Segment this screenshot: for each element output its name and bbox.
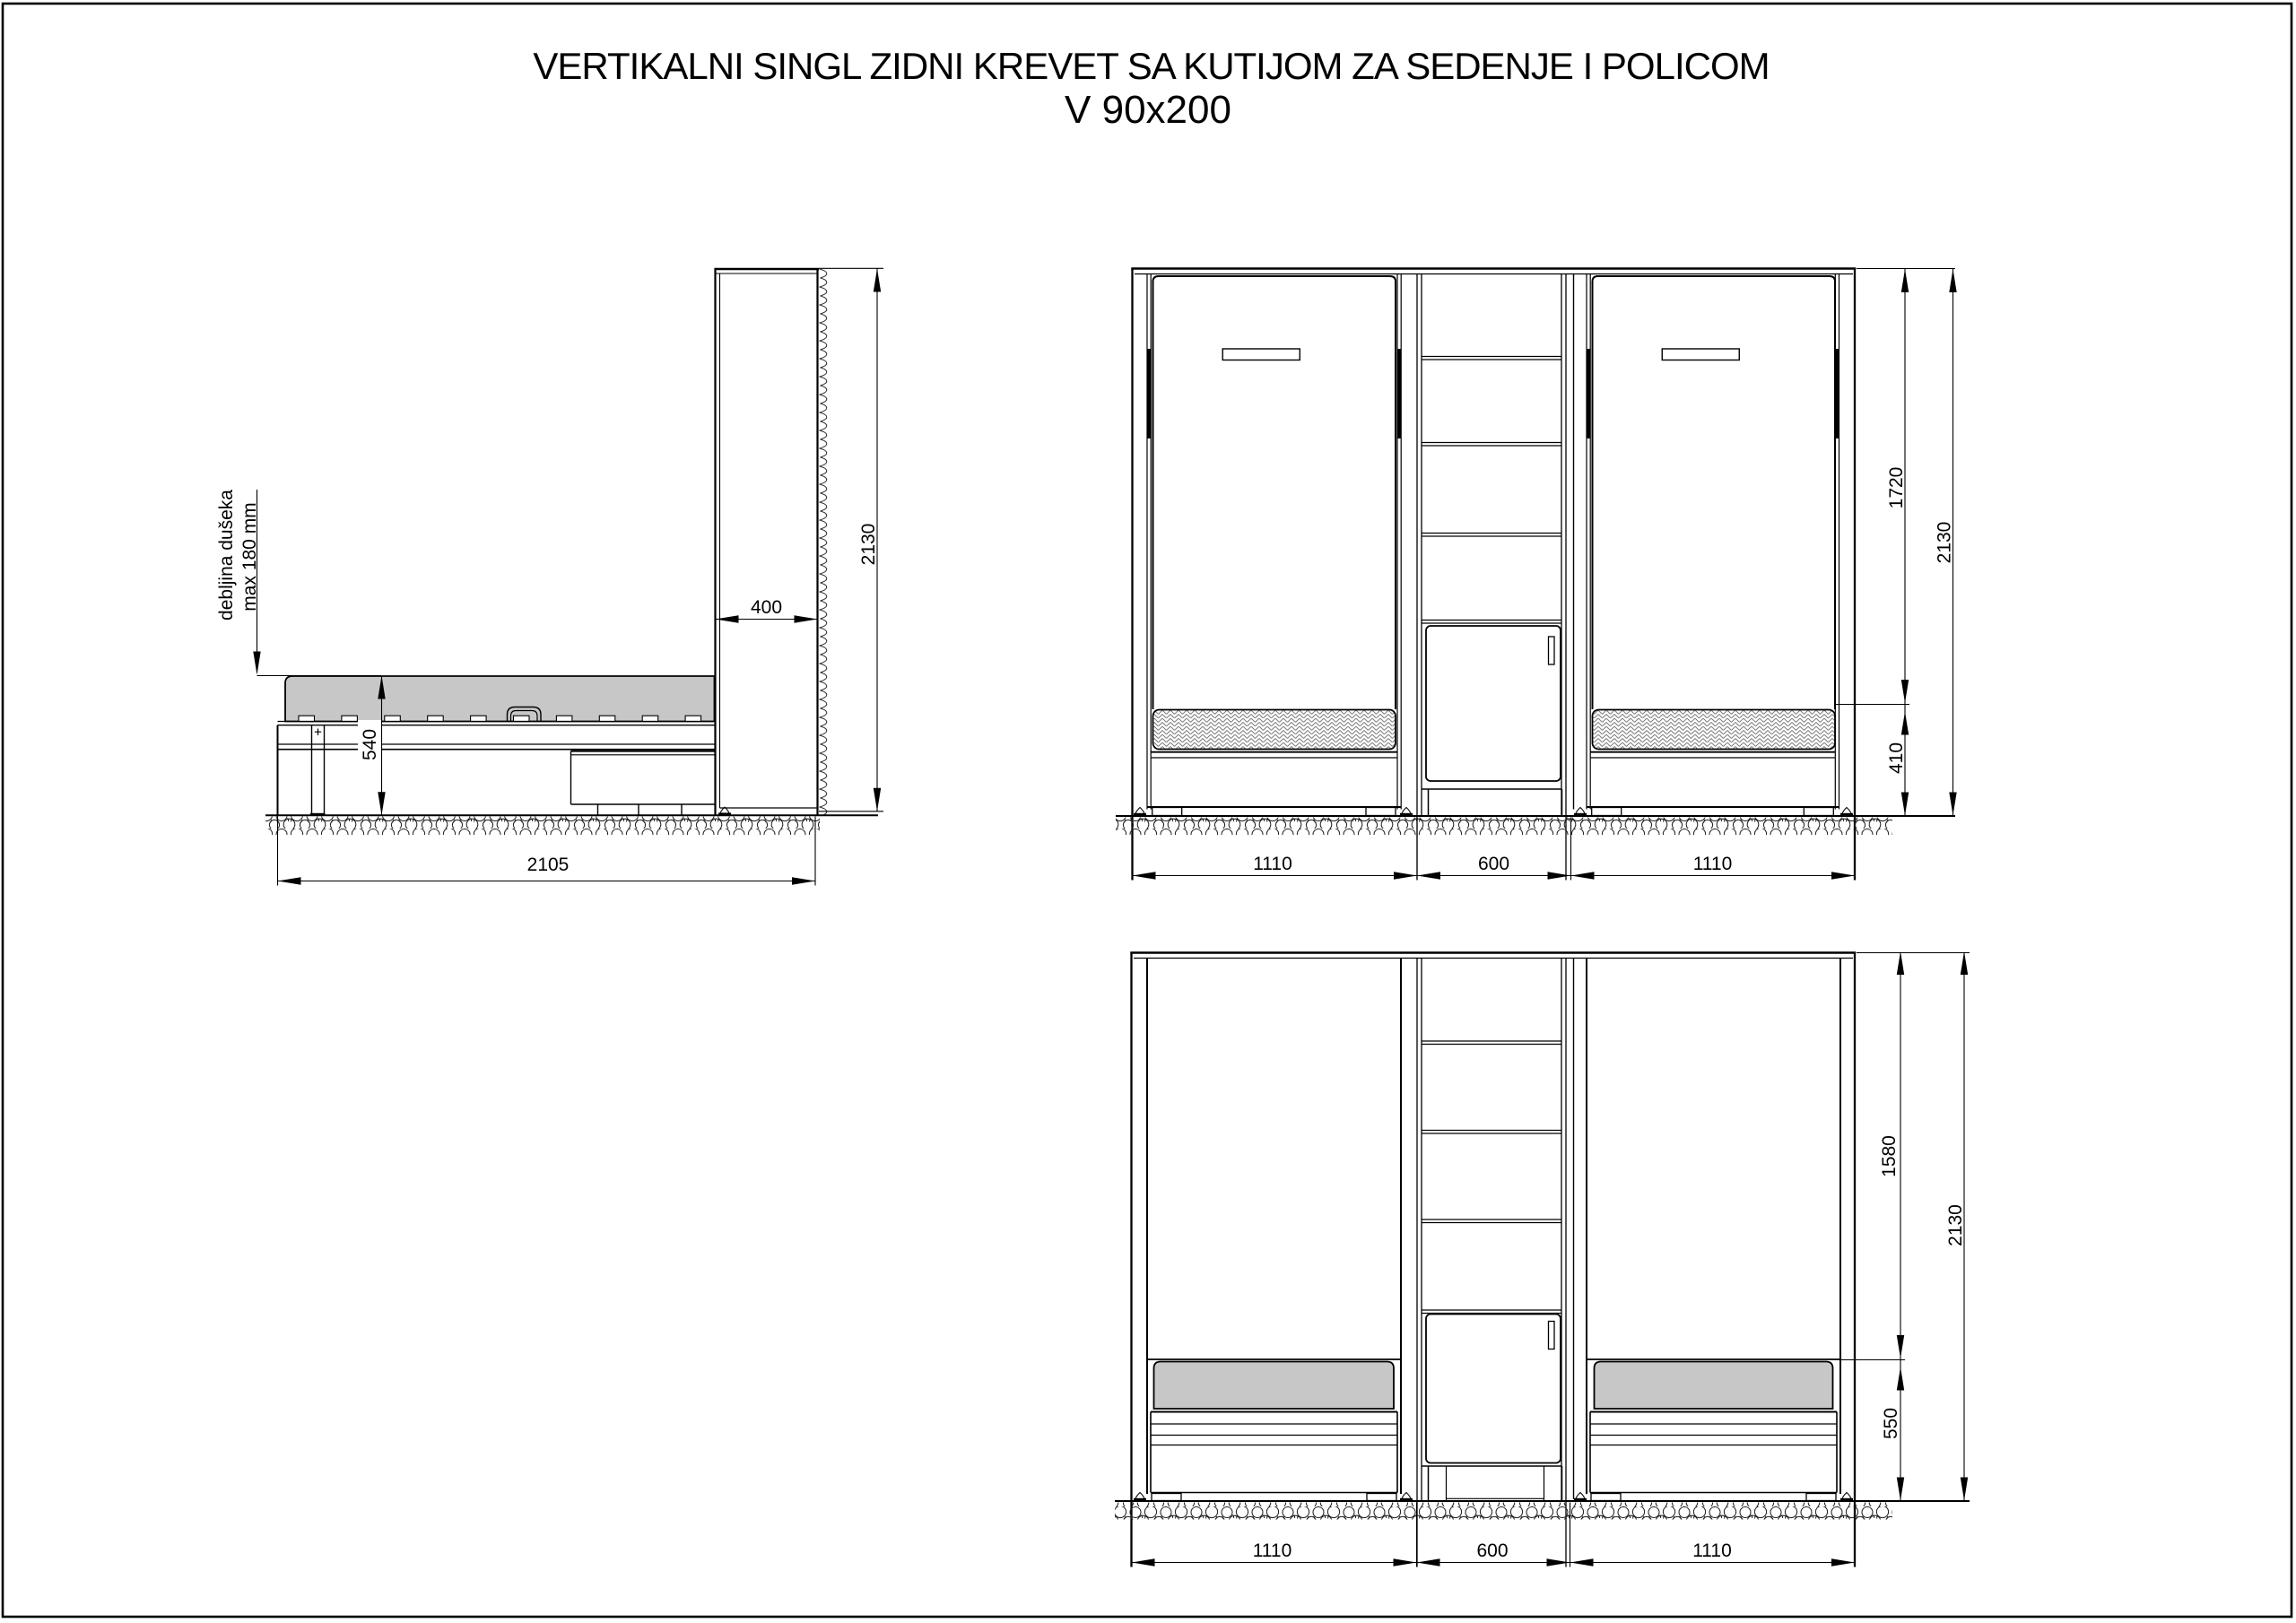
svg-text:540: 540	[360, 729, 380, 760]
svg-text:600: 600	[1478, 854, 1509, 874]
svg-text:1580: 1580	[1879, 1135, 1900, 1177]
svg-text:1110: 1110	[1692, 1541, 1732, 1561]
svg-text:2130: 2130	[1945, 1204, 1966, 1246]
svg-text:1110: 1110	[1253, 1541, 1292, 1561]
svg-text:410: 410	[1886, 742, 1907, 774]
svg-text:2130: 2130	[1935, 522, 1955, 564]
svg-text:1110: 1110	[1693, 854, 1733, 874]
svg-text:400: 400	[751, 597, 782, 618]
svg-text:1720: 1720	[1886, 467, 1907, 509]
svg-text:550: 550	[1881, 1408, 1901, 1439]
svg-text:1110: 1110	[1253, 854, 1292, 874]
svg-text:max 180 mm: max 180 mm	[239, 502, 260, 611]
svg-text:debljina dušeka: debljina dušeka	[216, 490, 237, 621]
svg-text:2105: 2105	[527, 855, 570, 875]
svg-text:V 90x200: V 90x200	[1065, 88, 1231, 132]
svg-text:2130: 2130	[858, 524, 879, 566]
svg-text:VERTIKALNI SINGL ZIDNI KREVET: VERTIKALNI SINGL ZIDNI KREVET SA KUTIJOM…	[533, 45, 1769, 87]
svg-text:600: 600	[1476, 1541, 1508, 1561]
